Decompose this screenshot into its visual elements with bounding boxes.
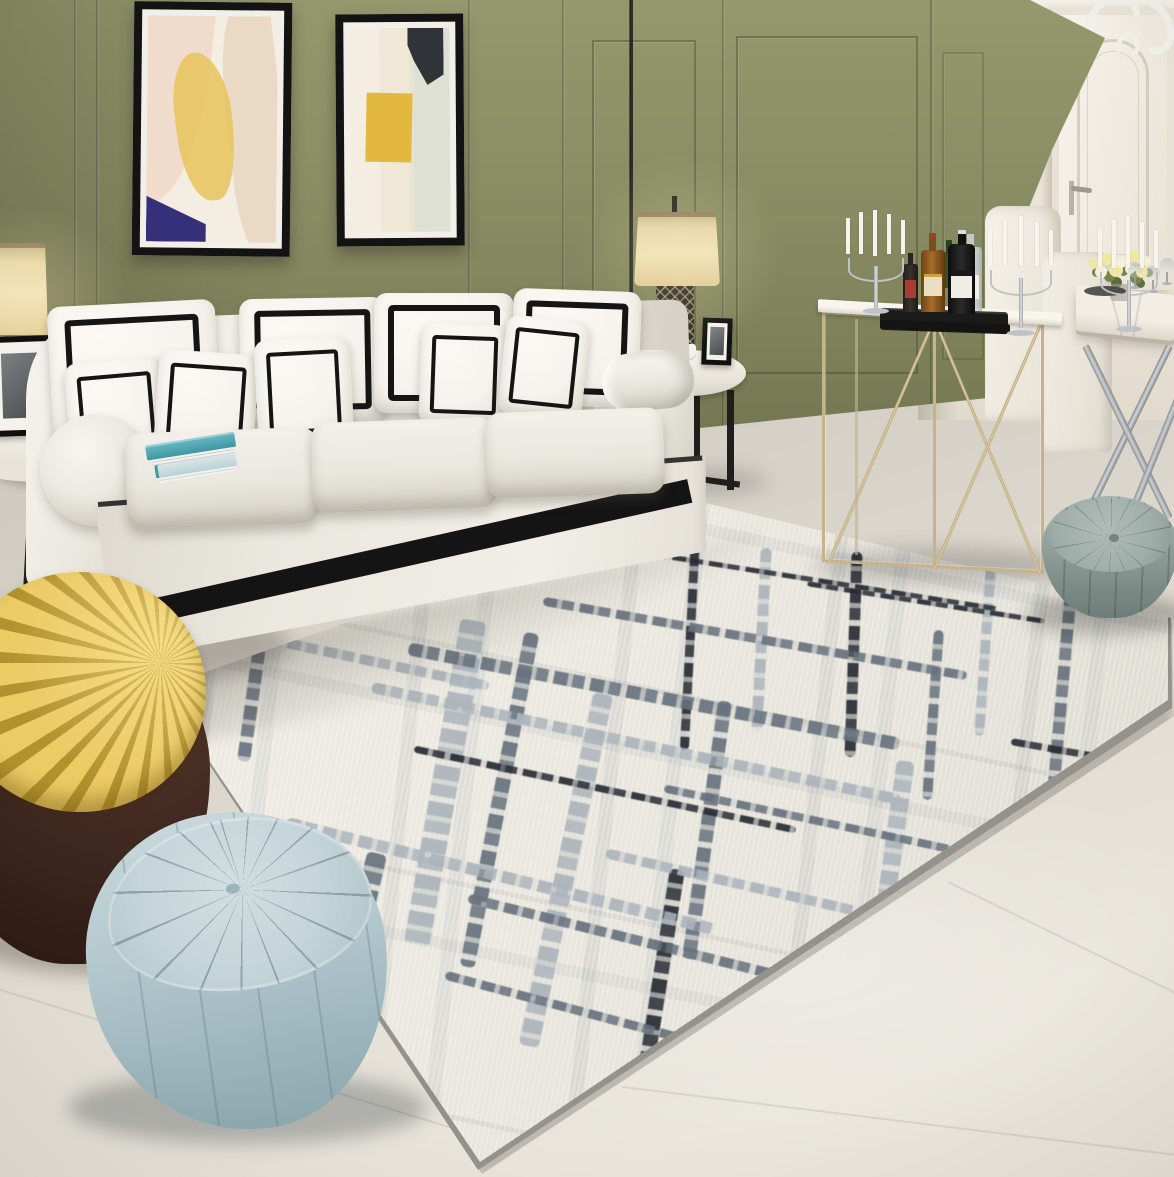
bottle-neck <box>908 253 913 265</box>
candle <box>1126 216 1130 268</box>
wine-glass <box>1160 258 1174 288</box>
console-back-leg <box>855 319 858 555</box>
candelabra <box>988 216 1054 336</box>
candle <box>846 218 850 254</box>
candle <box>1112 220 1116 268</box>
candelabra-foot <box>863 308 889 314</box>
living-room-scene <box>0 0 1174 1177</box>
throw-pillow-small <box>497 314 591 422</box>
candelabra-stem <box>874 266 878 308</box>
bottle-cap <box>929 233 936 237</box>
rug-stroke <box>922 630 944 800</box>
console-brace <box>933 324 1042 570</box>
candle <box>1003 220 1007 266</box>
bottle-band <box>958 230 966 234</box>
candle <box>1098 228 1102 268</box>
candelabra-foot <box>1116 326 1142 332</box>
artwork-right <box>335 14 465 247</box>
bottle-label <box>924 274 942 296</box>
bottle-label <box>951 270 972 298</box>
candle <box>1019 216 1023 266</box>
bottle-whiskey <box>921 250 945 312</box>
artwork-left-canvas <box>146 15 278 242</box>
candelabra-stem <box>1127 280 1131 326</box>
pouf-center-seam <box>226 883 241 895</box>
throw-pillow-small <box>418 322 510 427</box>
artwork-left <box>132 1 293 257</box>
candle <box>859 212 863 254</box>
photo <box>710 327 725 355</box>
bottle-neck <box>929 236 936 251</box>
bottle-jack <box>948 244 975 314</box>
console-brace <box>827 319 936 565</box>
candle <box>1049 230 1053 266</box>
rug-stroke <box>414 746 797 834</box>
table-lamp-shade <box>634 212 720 286</box>
candle <box>1140 222 1144 268</box>
glass-stem <box>1166 272 1168 282</box>
artwork-right-canvas <box>349 28 450 233</box>
bottle-label <box>905 280 916 298</box>
console-frame <box>822 310 1044 574</box>
candle <box>887 214 891 254</box>
candelabra-stem <box>1019 278 1023 328</box>
candle <box>988 228 992 266</box>
pouf-button <box>1109 534 1119 542</box>
candle <box>1154 230 1158 268</box>
floor-lamp-shade <box>0 243 48 335</box>
candelabra-foot <box>1007 330 1035 336</box>
candelabra <box>1098 214 1160 332</box>
candle <box>901 220 905 254</box>
seat-cushion <box>485 407 666 499</box>
pouf-right-top <box>1050 498 1172 572</box>
console-bar-vertical <box>933 319 936 565</box>
candelabra <box>846 210 906 314</box>
art-shape-yellow-block <box>365 93 412 163</box>
side-table-leg <box>727 390 734 490</box>
blooms <box>1088 258 1098 268</box>
candle <box>1035 222 1039 266</box>
rug-stroke <box>974 566 996 736</box>
glass-foot <box>1162 282 1172 285</box>
seat-cushion <box>310 417 497 513</box>
rug-stroke <box>807 581 1045 623</box>
picture-frame <box>701 317 733 365</box>
candle <box>873 210 877 256</box>
